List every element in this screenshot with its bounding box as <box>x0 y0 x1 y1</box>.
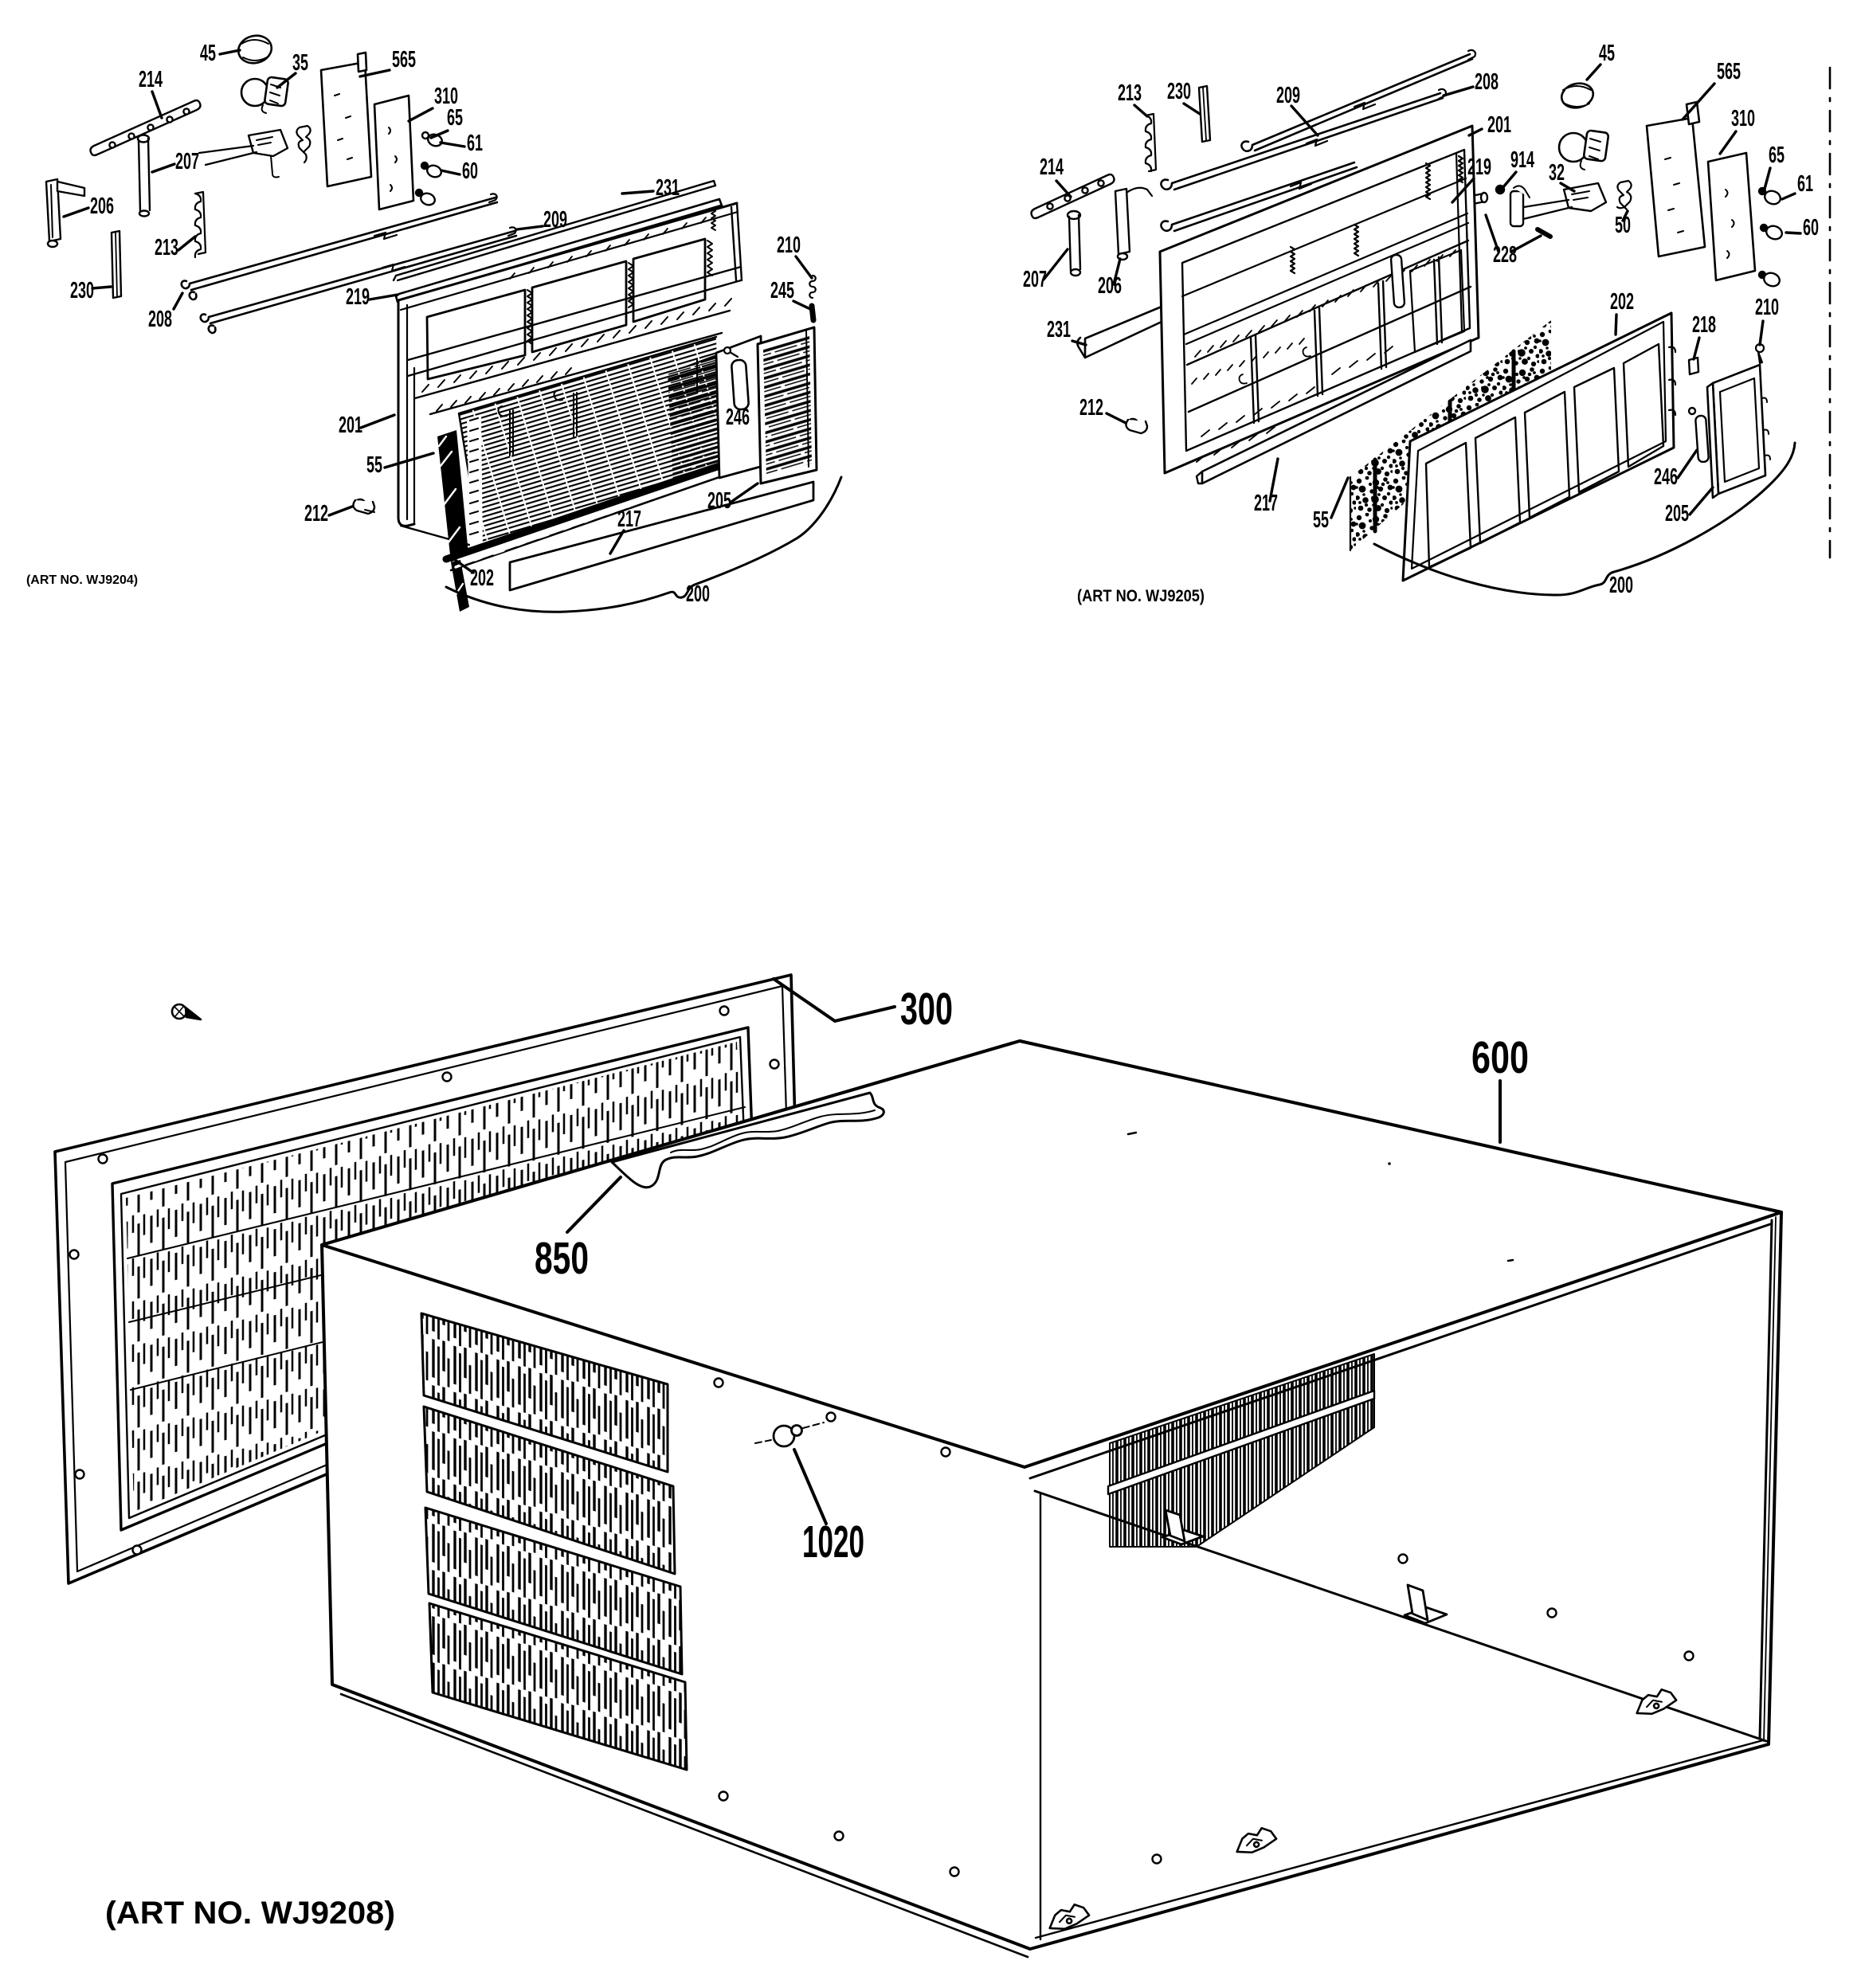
svg-text:219: 219 <box>1467 155 1491 180</box>
svg-text:210: 210 <box>1755 295 1779 320</box>
svg-text:218: 218 <box>1692 312 1716 338</box>
svg-text:209: 209 <box>543 207 567 233</box>
svg-text:231: 231 <box>656 175 680 201</box>
svg-text:206: 206 <box>90 194 114 219</box>
svg-text:61: 61 <box>467 131 483 156</box>
svg-text:60: 60 <box>462 158 478 184</box>
svg-text:213: 213 <box>155 235 178 260</box>
svg-text:231: 231 <box>1047 317 1071 342</box>
svg-text:246: 246 <box>1654 464 1678 490</box>
svg-text:213: 213 <box>1118 80 1142 106</box>
svg-text:206: 206 <box>1098 273 1122 299</box>
svg-text:55: 55 <box>1313 507 1329 533</box>
svg-text:246: 246 <box>726 405 750 430</box>
svg-text:205: 205 <box>1665 501 1689 526</box>
svg-text:(ART NO. WJ9204): (ART NO. WJ9204) <box>26 573 138 587</box>
svg-text:61: 61 <box>1797 171 1813 197</box>
svg-text:217: 217 <box>1254 491 1278 516</box>
svg-text:209: 209 <box>1276 83 1300 108</box>
svg-text:228: 228 <box>1493 242 1517 268</box>
svg-text:200: 200 <box>1609 573 1633 598</box>
svg-text:219: 219 <box>346 284 370 310</box>
svg-text:1020: 1020 <box>802 1516 864 1567</box>
svg-text:850: 850 <box>535 1233 589 1284</box>
svg-text:310: 310 <box>1731 106 1755 131</box>
svg-text:201: 201 <box>1487 112 1511 138</box>
svg-text:(ART NO. WJ9208): (ART NO. WJ9208) <box>105 1896 395 1931</box>
svg-text:214: 214 <box>139 67 163 92</box>
svg-text:35: 35 <box>292 50 308 76</box>
svg-text:230: 230 <box>1167 79 1191 104</box>
svg-text:217: 217 <box>617 507 641 532</box>
svg-text:55: 55 <box>366 452 382 478</box>
svg-text:300: 300 <box>900 984 953 1035</box>
svg-text:202: 202 <box>470 565 494 591</box>
svg-text:65: 65 <box>447 105 463 131</box>
svg-text:214: 214 <box>1040 155 1064 180</box>
svg-text:565: 565 <box>1717 59 1741 84</box>
svg-text:45: 45 <box>1599 41 1615 66</box>
svg-text:230: 230 <box>70 278 94 303</box>
svg-text:(ART NO. WJ9205): (ART NO. WJ9205) <box>1077 587 1205 605</box>
svg-text:32: 32 <box>1549 160 1565 186</box>
svg-text:208: 208 <box>148 307 172 332</box>
svg-text:600: 600 <box>1471 1032 1529 1083</box>
svg-text:212: 212 <box>304 501 328 526</box>
svg-text:212: 212 <box>1079 395 1103 421</box>
svg-text:208: 208 <box>1475 69 1499 95</box>
svg-text:207: 207 <box>1023 267 1047 292</box>
svg-text:245: 245 <box>770 278 794 303</box>
svg-text:201: 201 <box>339 413 362 438</box>
svg-text:50: 50 <box>1615 213 1631 238</box>
svg-text:205: 205 <box>707 488 731 514</box>
svg-text:45: 45 <box>200 41 216 66</box>
svg-text:914: 914 <box>1510 147 1534 173</box>
svg-text:200: 200 <box>686 581 710 607</box>
svg-text:202: 202 <box>1610 289 1634 315</box>
svg-text:207: 207 <box>175 149 199 174</box>
svg-text:65: 65 <box>1769 143 1785 168</box>
svg-text:60: 60 <box>1803 215 1819 241</box>
svg-text:210: 210 <box>777 233 801 258</box>
svg-text:565: 565 <box>392 47 416 72</box>
